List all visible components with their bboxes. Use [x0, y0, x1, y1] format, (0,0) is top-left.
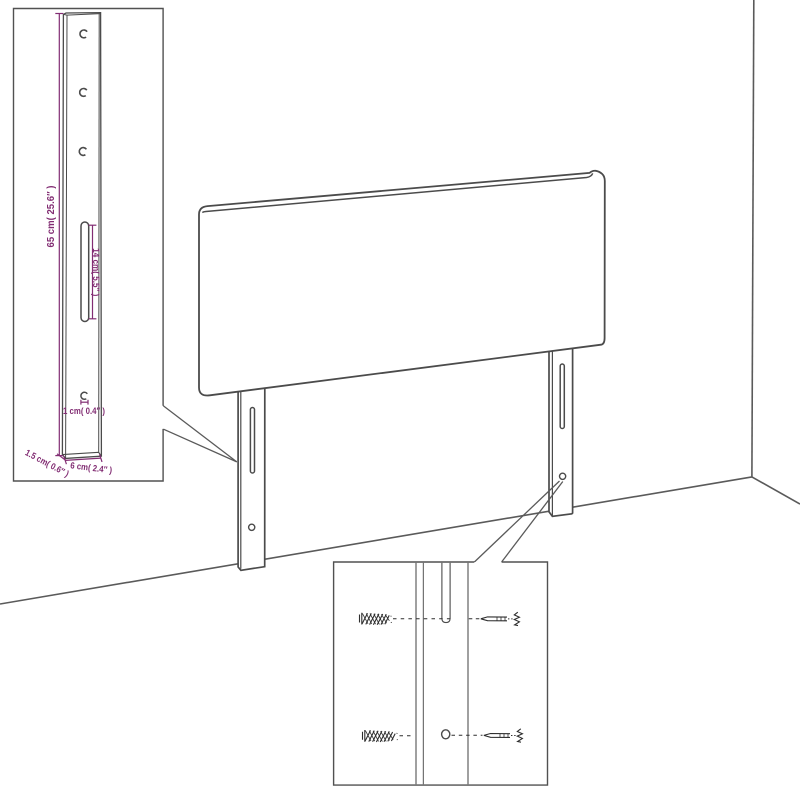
svg-text:14 cm( 5.5″ ): 14 cm( 5.5″ ) — [91, 248, 101, 296]
svg-text:1 cm( 0.4″ ): 1 cm( 0.4″ ) — [63, 406, 105, 416]
svg-text:65 cm( 25.6″ ): 65 cm( 25.6″ ) — [46, 186, 57, 248]
